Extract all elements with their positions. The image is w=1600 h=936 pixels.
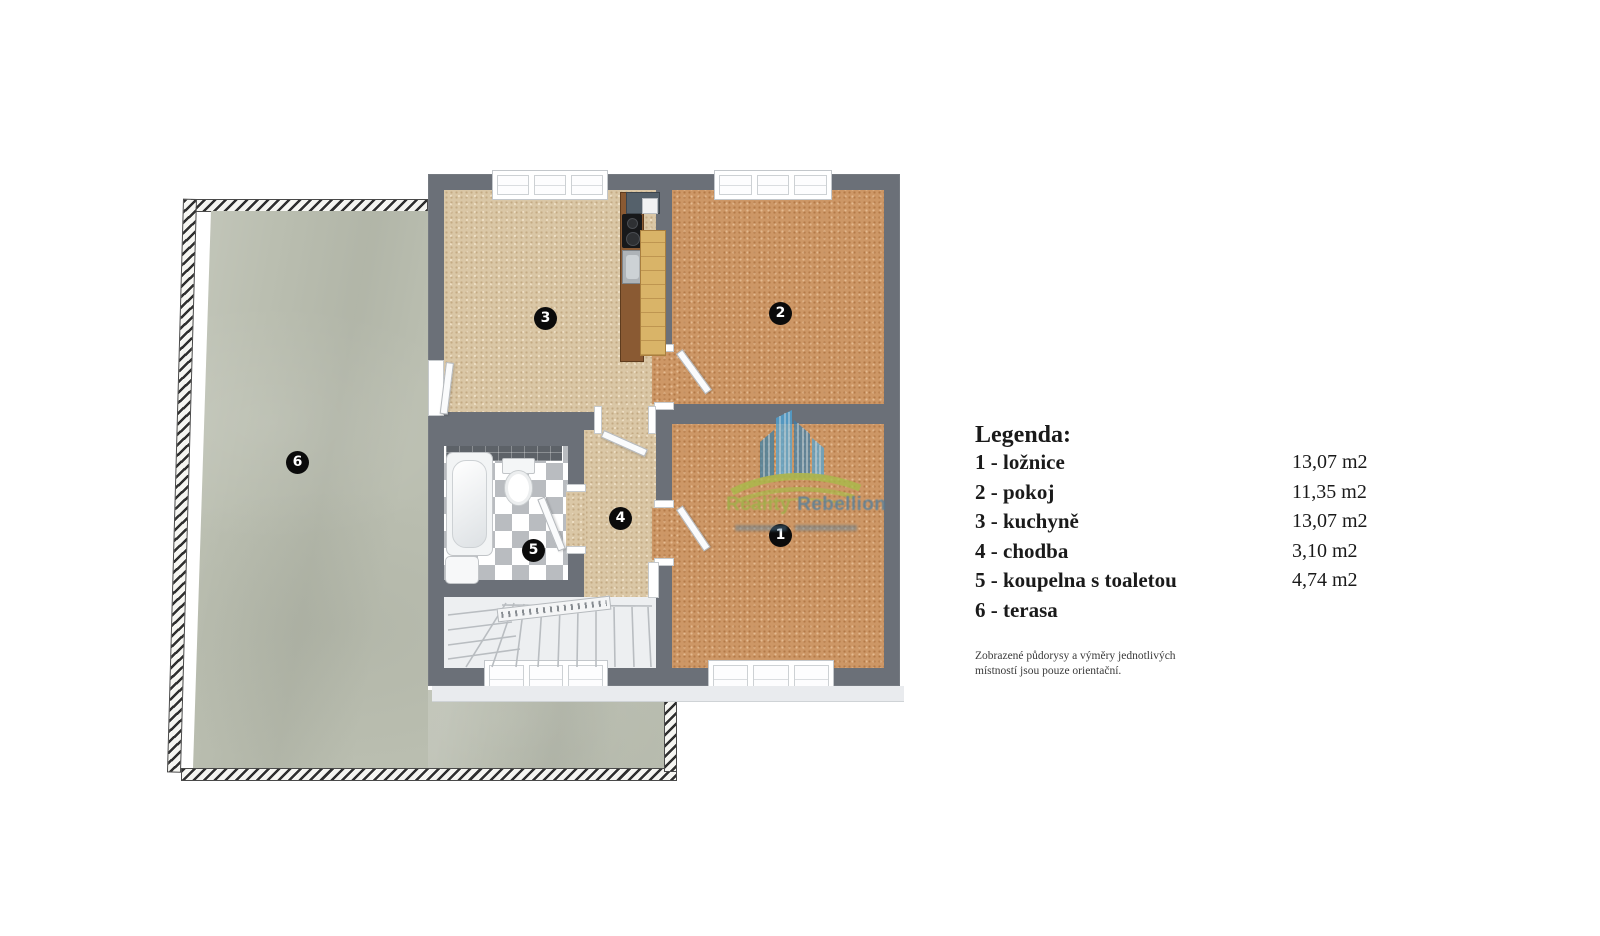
hallway-room1-doorway-floor [652, 508, 676, 560]
legend-row: 6 - terasa [975, 598, 1405, 628]
bathtub [446, 452, 493, 556]
room-badge-2: 2 [769, 302, 792, 325]
hallway-kitchen-doorway-floor [600, 406, 650, 434]
legend-room-label: 1 - ložnice [975, 450, 1065, 475]
kitchen-counter-table [640, 230, 666, 356]
legend-title: Legenda: [975, 420, 1405, 450]
terrace-railing-top [191, 199, 428, 212]
legend-room-area: 13,07 m2 [1292, 510, 1368, 533]
legend-room-area: 4,74 m2 [1292, 569, 1358, 592]
window-pane [571, 175, 603, 195]
window-pane [719, 175, 752, 195]
kitchen-sink-basin [626, 255, 639, 279]
door-jamb [654, 500, 674, 508]
legend-room-label: 4 - chodba [975, 539, 1068, 564]
agency-watermark: RealityRebellion [726, 408, 866, 530]
toilet-bowl [504, 470, 533, 506]
window-pane [497, 175, 529, 195]
legend-room-label: 6 - terasa [975, 598, 1058, 623]
door-jamb [654, 402, 674, 410]
floorplan-page: 1 2 3 4 5 6 [0, 0, 1600, 936]
room-badge-4: 4 [609, 507, 632, 530]
room-badge-5: 5 [522, 539, 545, 562]
terrace-railing-left [167, 199, 197, 773]
legend-disclaimer-line1: Zobrazené půdorysy a výměry jednotlivých [975, 649, 1405, 664]
kitchen-hood-vent [642, 198, 658, 214]
window-pane [757, 175, 790, 195]
legend-room-area: 11,35 m2 [1292, 481, 1367, 504]
legend-room-area: 13,07 m2 [1292, 451, 1368, 474]
agency-tagline-blurred [726, 518, 866, 536]
stove-burner [627, 218, 638, 229]
legend-row: 4 - chodba 3,10 m2 [975, 539, 1405, 569]
agency-name-word2: Rebellion [797, 494, 886, 515]
agency-name-word1: Reality [726, 494, 791, 515]
agency-name: RealityRebellion [726, 494, 866, 516]
door-jamb [566, 484, 586, 492]
legend-row: 5 - koupelna s toaletou 4,74 m2 [975, 568, 1405, 598]
legend-room-label: 2 - pokoj [975, 480, 1054, 505]
stair-wall-stub [648, 562, 659, 598]
kitchen-window [492, 170, 608, 200]
room2-floor [672, 190, 884, 404]
legend-row: 1 - ložnice 13,07 m2 [975, 450, 1405, 480]
door-jamb [648, 406, 656, 434]
legend-room-label: 5 - koupelna s toaletou [975, 568, 1177, 593]
building-south-face [432, 686, 904, 702]
legend-room-area: 3,10 m2 [1292, 540, 1358, 563]
terrace-floor [186, 211, 428, 768]
terrace-railing-bottom [181, 768, 677, 781]
bathroom-doorway-floor [566, 492, 586, 548]
door-jamb [594, 406, 602, 434]
tagline-segment [735, 525, 787, 531]
window-pane [534, 175, 566, 195]
legend-row: 3 - kuchyně 13,07 m2 [975, 509, 1405, 539]
legend-row: 2 - pokoj 11,35 m2 [975, 480, 1405, 510]
window-pane [794, 175, 827, 195]
room-badge-3: 3 [534, 307, 557, 330]
room2-window [714, 170, 832, 200]
bathtub-basin [452, 460, 487, 548]
kitchen-room2-doorway-floor [652, 352, 676, 404]
legend-room-label: 3 - kuchyně [975, 509, 1079, 534]
bathroom-sink [445, 556, 479, 584]
stove-burner [626, 232, 640, 246]
tagline-segment [795, 525, 857, 531]
legend-disclaimer-line2: místností jsou pouze orientační. [975, 664, 1405, 679]
room-badge-6: 6 [286, 451, 309, 474]
terrace-railing-right [664, 690, 677, 772]
stove-cooktop [622, 214, 642, 248]
legend-disclaimer: Zobrazené půdorysy a výměry jednotlivých… [975, 649, 1405, 679]
door-jamb [566, 546, 586, 554]
legend-panel: Legenda: 1 - ložnice 13,07 m2 2 - pokoj … [975, 420, 1405, 679]
